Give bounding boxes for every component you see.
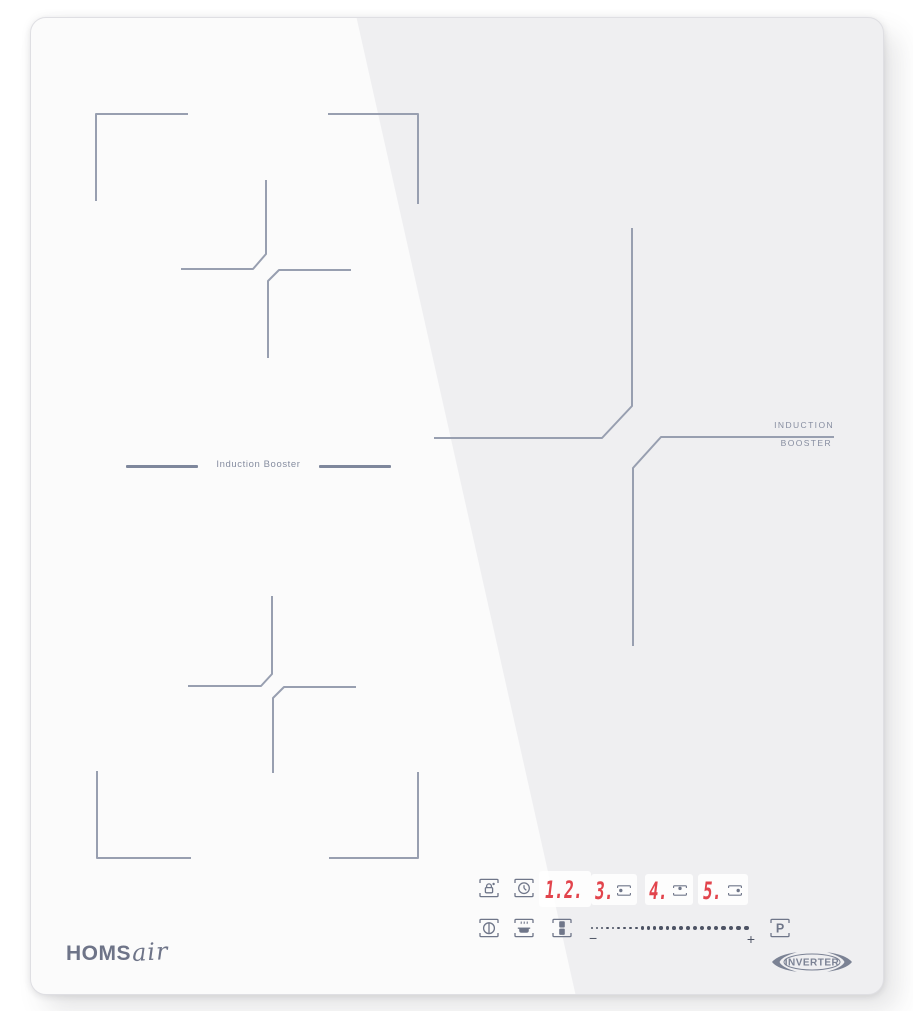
zone-position-dot-top (678, 887, 681, 890)
power-slider-dots[interactable] (591, 921, 749, 935)
power-level-slider[interactable]: − + (587, 917, 763, 947)
product-photo: Induction Booster INDUCTION BOOSTER (0, 0, 913, 1011)
zone2-bracket-right (329, 772, 418, 858)
slider-dot[interactable] (700, 926, 704, 930)
inverter-badge-graphic: INVERTER (769, 949, 855, 975)
zone5-position-indicator[interactable] (727, 884, 743, 897)
zone1-bracket-left (96, 114, 188, 201)
zone1-cross-a (181, 180, 266, 269)
zone2-cross-b (273, 687, 356, 773)
timer-clock-icon (513, 877, 535, 899)
slider-dot[interactable] (617, 927, 620, 930)
timer-button[interactable] (513, 877, 535, 899)
display-flex-zone-level[interactable]: 1.2. (543, 876, 585, 904)
slider-dot[interactable] (666, 926, 670, 930)
zone1-cross-b (268, 270, 351, 358)
slider-dot[interactable] (606, 927, 608, 929)
flex-separator-line-right (319, 465, 391, 468)
slider-dot[interactable] (612, 927, 614, 929)
slider-dot[interactable] (601, 927, 603, 929)
child-lock-button[interactable] (478, 877, 500, 899)
booster-label: INDUCTION BOOSTER (774, 421, 834, 448)
inverter-badge: INVERTER (769, 949, 855, 980)
slider-dot[interactable] (707, 926, 711, 930)
slider-dot[interactable] (744, 926, 749, 931)
display-zone3-level[interactable]: 3. (593, 877, 616, 905)
brand-logo-text: HOMS (66, 942, 131, 965)
inverter-badge-label: INVERTER (785, 958, 840, 969)
slider-dot[interactable] (659, 926, 662, 929)
induction-hob-glass-panel: Induction Booster INDUCTION BOOSTER (30, 17, 884, 995)
slider-dot[interactable] (596, 927, 598, 929)
brand-logo: HOMSair (66, 938, 168, 966)
power-boost-button[interactable]: P (769, 917, 791, 939)
power-boost-label: P (776, 921, 784, 935)
display-zone5-level[interactable]: 5. (701, 877, 724, 905)
slider-dot[interactable] (714, 926, 718, 930)
keep-warm-button[interactable] (513, 917, 535, 939)
slider-dot[interactable] (693, 926, 697, 930)
slider-dot[interactable] (591, 927, 593, 929)
power-standby-icon (478, 917, 500, 939)
booster-label-line2: BOOSTER (774, 439, 834, 448)
plus-label[interactable]: + (747, 931, 755, 947)
slider-dot[interactable] (641, 926, 644, 929)
slider-dot[interactable] (653, 926, 656, 929)
zone1-bracket-right (328, 114, 418, 204)
display-zone4-level[interactable]: 4. (647, 877, 670, 905)
slider-dot[interactable] (686, 926, 690, 930)
child-lock-icon (478, 877, 500, 899)
keep-warm-pan-icon (513, 917, 535, 939)
power-button[interactable] (478, 917, 500, 939)
flex-separator-label: Induction Booster (198, 459, 319, 470)
zone3-position-indicator[interactable] (616, 884, 632, 897)
cooking-zone-markings (31, 18, 883, 994)
slider-dot[interactable] (729, 926, 734, 931)
brand-logo-script: air (131, 937, 169, 967)
booster-label-line1: INDUCTION (774, 421, 834, 430)
slider-dot[interactable] (679, 926, 683, 930)
glass-reflection (30, 17, 884, 995)
slider-dot[interactable] (647, 926, 650, 929)
slider-dot[interactable] (623, 927, 626, 930)
zone4-position-indicator[interactable] (672, 884, 688, 897)
zone-position-dot-right (737, 889, 740, 892)
slider-dot[interactable] (672, 926, 676, 930)
flex-separator-line-left (126, 465, 198, 468)
minus-label[interactable]: − (589, 930, 597, 946)
slider-dot[interactable] (635, 927, 638, 930)
zone3-cross-a (434, 228, 632, 438)
slider-dot[interactable] (629, 927, 632, 930)
slider-dot[interactable] (721, 926, 725, 930)
zone2-bracket-left (97, 771, 191, 858)
bridge-zone-button[interactable] (551, 917, 573, 939)
zone-position-dot-left (619, 889, 622, 892)
bridge-zone-icon (551, 917, 573, 939)
slider-dot[interactable] (736, 926, 741, 931)
zone2-cross-a (188, 596, 272, 686)
zone3-cross-b (633, 437, 834, 646)
